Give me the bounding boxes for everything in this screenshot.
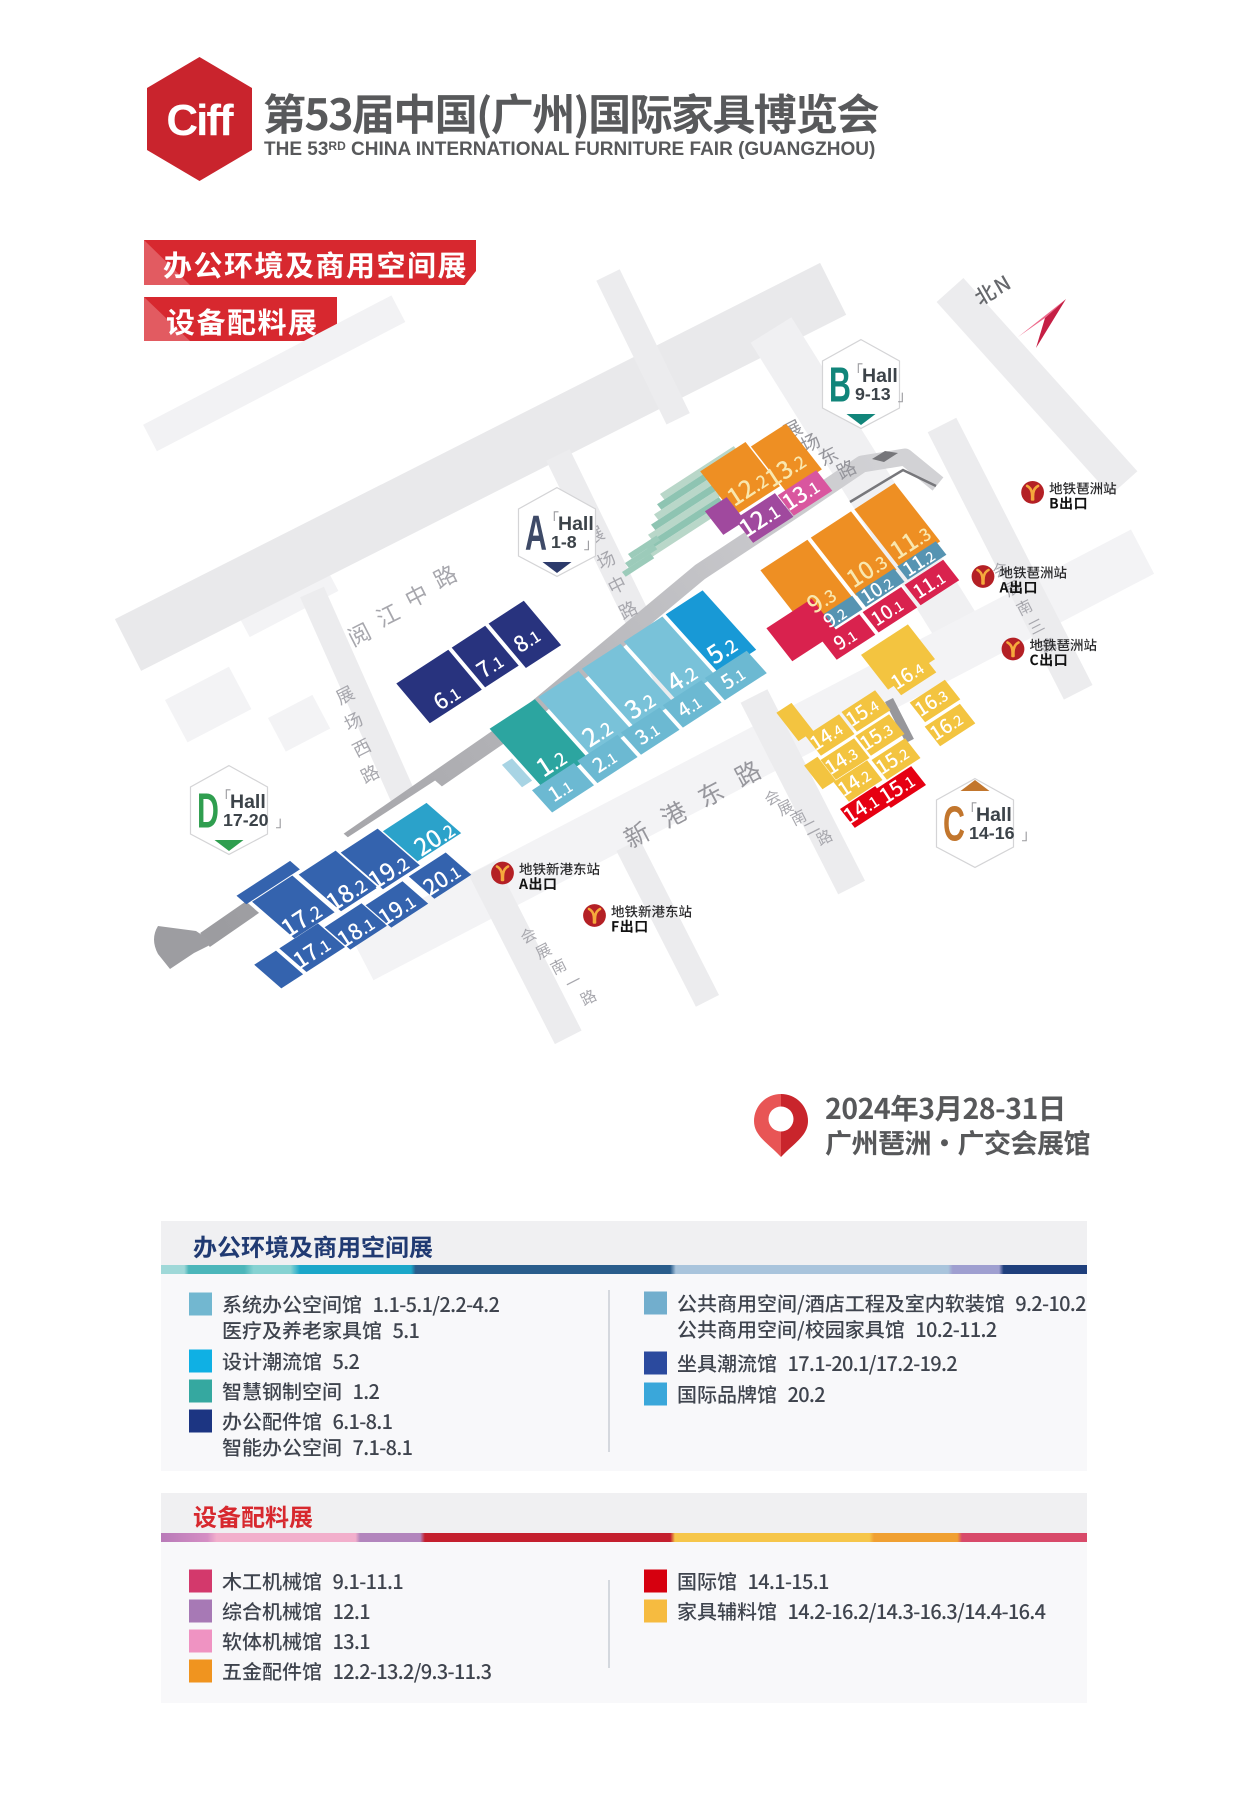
svg-text:1-8: 1-8 [551,532,577,552]
svg-text:17-20: 17-20 [223,810,269,830]
svg-text:C: C [943,796,965,851]
svg-text:D: D [197,783,219,838]
svg-text:9-13: 9-13 [855,384,891,404]
svg-text:B: B [829,357,851,412]
svg-text:THE 53RD CHINA INTERNATIONAL F: THE 53RD CHINA INTERNATIONAL FURNITURE F… [264,139,875,160]
svg-text:14-16: 14-16 [969,823,1015,843]
svg-text:A: A [525,505,547,560]
svg-text:Ciff: Ciff [166,96,234,145]
